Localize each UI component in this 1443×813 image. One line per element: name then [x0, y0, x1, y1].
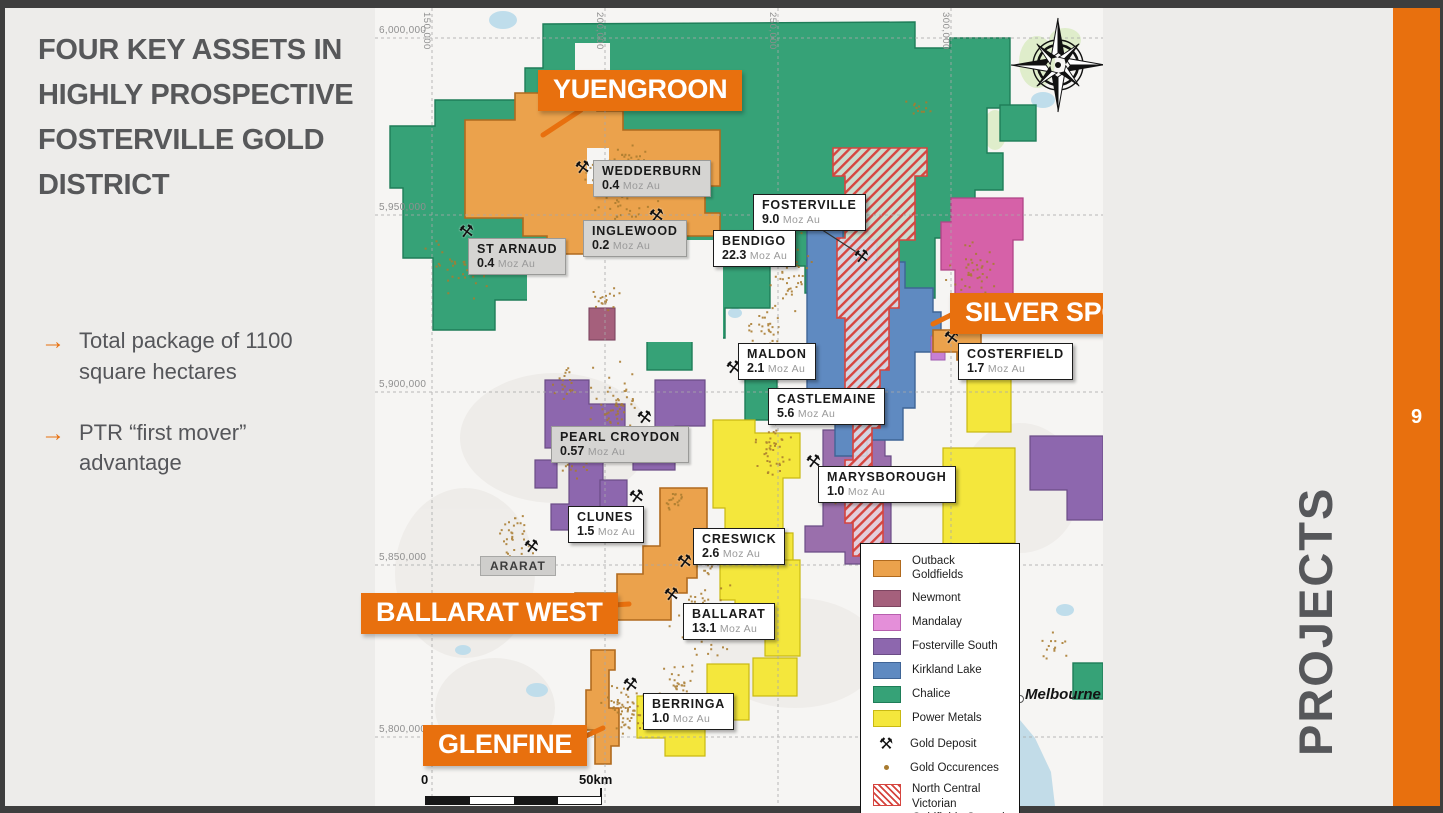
legend-swatch-newmont: [873, 590, 901, 607]
grid-label-x: 300,000: [940, 12, 951, 50]
gold-deposit-icon: ⚒: [663, 584, 681, 606]
arrow-bullet-icon: →: [41, 418, 65, 480]
deposit-value: 5.6 Moz Au: [777, 406, 876, 420]
deposit-label-bendigo: BENDIGO 22.3 Moz Au: [713, 230, 796, 267]
deposit-value: 1.5 Moz Au: [577, 524, 635, 538]
callout-ballarat-west: BALLARAT WEST: [361, 593, 618, 634]
deposit-name: INGLEWOOD: [592, 224, 678, 238]
gold-deposit-icon: ⚒: [622, 674, 640, 696]
gold-deposit-icon: ⚒: [873, 734, 899, 754]
deposit-label-wedderburn: WEDDERBURN 0.4 Moz Au: [593, 160, 711, 197]
section-label: PROJECTS: [1288, 276, 1343, 756]
deposit-value: 1.0 Moz Au: [652, 711, 725, 725]
town-label-melbourne: Melbourne: [1025, 686, 1101, 703]
deposit-label-pearl-croydon: PEARL CROYDON 0.57 Moz Au: [551, 426, 689, 463]
deposit-value: 13.1 Moz Au: [692, 621, 766, 635]
grid-label-y: 5,800,000: [379, 724, 426, 735]
legend-item: ⚒ Gold Deposit: [873, 734, 1009, 754]
deposit-name: CASTLEMAINE: [777, 392, 876, 406]
deposit-name: CLUNES: [577, 510, 635, 524]
bullet-text: PTR “first mover” advantage: [79, 418, 341, 480]
deposit-label-marysborough: MARYSBOROUGH 1.0 Moz Au: [818, 466, 956, 503]
deposit-name: ST ARNAUD: [477, 242, 557, 256]
deposit-name: WEDDERBURN: [602, 164, 702, 178]
slide-title: FOUR KEY ASSETS IN HIGHLY PROSPECTIVE FO…: [38, 28, 368, 208]
page-number: 9: [1393, 406, 1440, 429]
grid-label-y: 6,000,000: [379, 25, 426, 36]
deposit-name: CRESWICK: [702, 532, 776, 546]
left-panel: FOUR KEY ASSETS IN HIGHLY PROSPECTIVE FO…: [5, 8, 375, 806]
deposit-value: 1.7 Moz Au: [967, 361, 1064, 375]
deposit-name: BERRINGA: [652, 697, 725, 711]
gold-occurrence-icon: [884, 765, 889, 770]
deposit-label-berringa: BERRINGA 1.0 Moz Au: [643, 693, 734, 730]
legend-item: Fosterville South: [873, 638, 1009, 655]
deposit-value: 22.3 Moz Au: [722, 248, 787, 262]
scale-start-label: 0: [421, 772, 428, 787]
deposit-value: 0.2 Moz Au: [592, 238, 678, 252]
legend-item: North Central Victorian Goldfields Groun…: [873, 782, 1009, 813]
deposit-name: PEARL CROYDON: [560, 430, 680, 444]
legend-item: Gold Occurences: [873, 761, 1009, 775]
legend-swatch-fosterville-south: [873, 638, 901, 655]
deposit-value: 1.0 Moz Au: [827, 484, 947, 498]
grid-label-x: 200,000: [594, 12, 605, 50]
deposit-value: 2.6 Moz Au: [702, 546, 776, 560]
deposit-label-castlemaine: CASTLEMAINE 5.6 Moz Au: [768, 388, 885, 425]
deposit-label-creswick: CRESWICK 2.6 Moz Au: [693, 528, 785, 565]
town-label-ararat: ARARAT: [480, 556, 556, 576]
compass-icon: [1011, 18, 1103, 112]
right-panel: PROJECTS: [1103, 8, 1393, 806]
deposit-value: 2.1 Moz Au: [747, 361, 807, 375]
deposit-name: BALLARAT: [692, 607, 766, 621]
scale-bar-segments: [425, 796, 602, 805]
gold-deposit-icon: ⚒: [676, 551, 694, 573]
deposit-value: 0.57 Moz Au: [560, 444, 680, 458]
grid-label-x: 250,000: [767, 12, 778, 50]
bullet-item: → PTR “first mover” advantage: [41, 418, 351, 480]
legend-swatch-kirkland-lake: [873, 662, 901, 679]
gold-deposit-icon: ⚒: [574, 157, 592, 179]
legend-item: Mandalay: [873, 614, 1009, 631]
bullet-text: Total package of 1100 square hectares: [79, 326, 341, 388]
gold-deposit-icon: ⚒: [523, 536, 541, 558]
legend-item: Power Metals: [873, 710, 1009, 727]
deposit-value: 0.4 Moz Au: [602, 178, 702, 192]
deposit-name: BENDIGO: [722, 234, 787, 248]
deposit-name: FOSTERVILLE: [762, 198, 857, 212]
deposit-name: COSTERFIELD: [967, 347, 1064, 361]
deposit-label-ballarat: BALLARAT 13.1 Moz Au: [683, 603, 775, 640]
gold-deposit-icon: ⚒: [628, 486, 646, 508]
scale-bar: 0 50km: [419, 772, 619, 806]
bullet-list: → Total package of 1100 square hectares …: [41, 326, 351, 509]
legend-item: Chalice: [873, 686, 1009, 703]
scale-end-label: 50km: [579, 772, 612, 787]
deposit-value: 0.4 Moz Au: [477, 256, 557, 270]
deposit-label-costerfield: COSTERFIELD 1.7 Moz Au: [958, 343, 1073, 380]
gold-deposit-icon: ⚒: [853, 246, 871, 268]
callout-glenfine: GLENFINE: [423, 725, 587, 766]
slide: FOUR KEY ASSETS IN HIGHLY PROSPECTIVE FO…: [0, 0, 1443, 813]
deposit-label-fosterville: FOSTERVILLE 9.0 Moz Au: [753, 194, 866, 231]
legend-item: Kirkland Lake: [873, 662, 1009, 679]
deposit-label-maldon: MALDON 2.1 Moz Au: [738, 343, 816, 380]
region-newmont: [589, 308, 615, 340]
callout-yuengroon: YUENGROON: [538, 70, 742, 111]
deposit-label-inglewood: INGLEWOOD 0.2 Moz Au: [583, 220, 687, 257]
legend-swatch-tender-hatch: [873, 784, 901, 806]
deposit-label-st-arnaud: ST ARNAUD 0.4 Moz Au: [468, 238, 566, 275]
deposit-label-clunes: CLUNES 1.5 Moz Au: [568, 506, 644, 543]
bullet-item: → Total package of 1100 square hectares: [41, 326, 351, 388]
arrow-bullet-icon: →: [41, 326, 65, 388]
grid-label-y: 5,900,000: [379, 379, 426, 390]
deposit-name: MARYSBOROUGH: [827, 470, 947, 484]
legend-swatch-outback-goldfields: [873, 560, 901, 577]
legend-item: Newmont: [873, 590, 1009, 607]
grid-label-y: 5,950,000: [379, 202, 426, 213]
legend-swatch-power-metals: [873, 710, 901, 727]
legend-swatch-mandalay: [873, 614, 901, 631]
deposit-value: 9.0 Moz Au: [762, 212, 857, 226]
map-legend: Outback Goldfields Newmont Mandalay Fost…: [860, 543, 1020, 813]
accent-bar: 9: [1393, 8, 1440, 806]
legend-item: Outback Goldfields: [873, 554, 1009, 583]
legend-swatch-chalice: [873, 686, 901, 703]
map-area: 150,000 200,000 250,000 300,000 6,000,00…: [375, 8, 1103, 806]
grid-label-y: 5,850,000: [379, 552, 426, 563]
deposit-name: MALDON: [747, 347, 807, 361]
